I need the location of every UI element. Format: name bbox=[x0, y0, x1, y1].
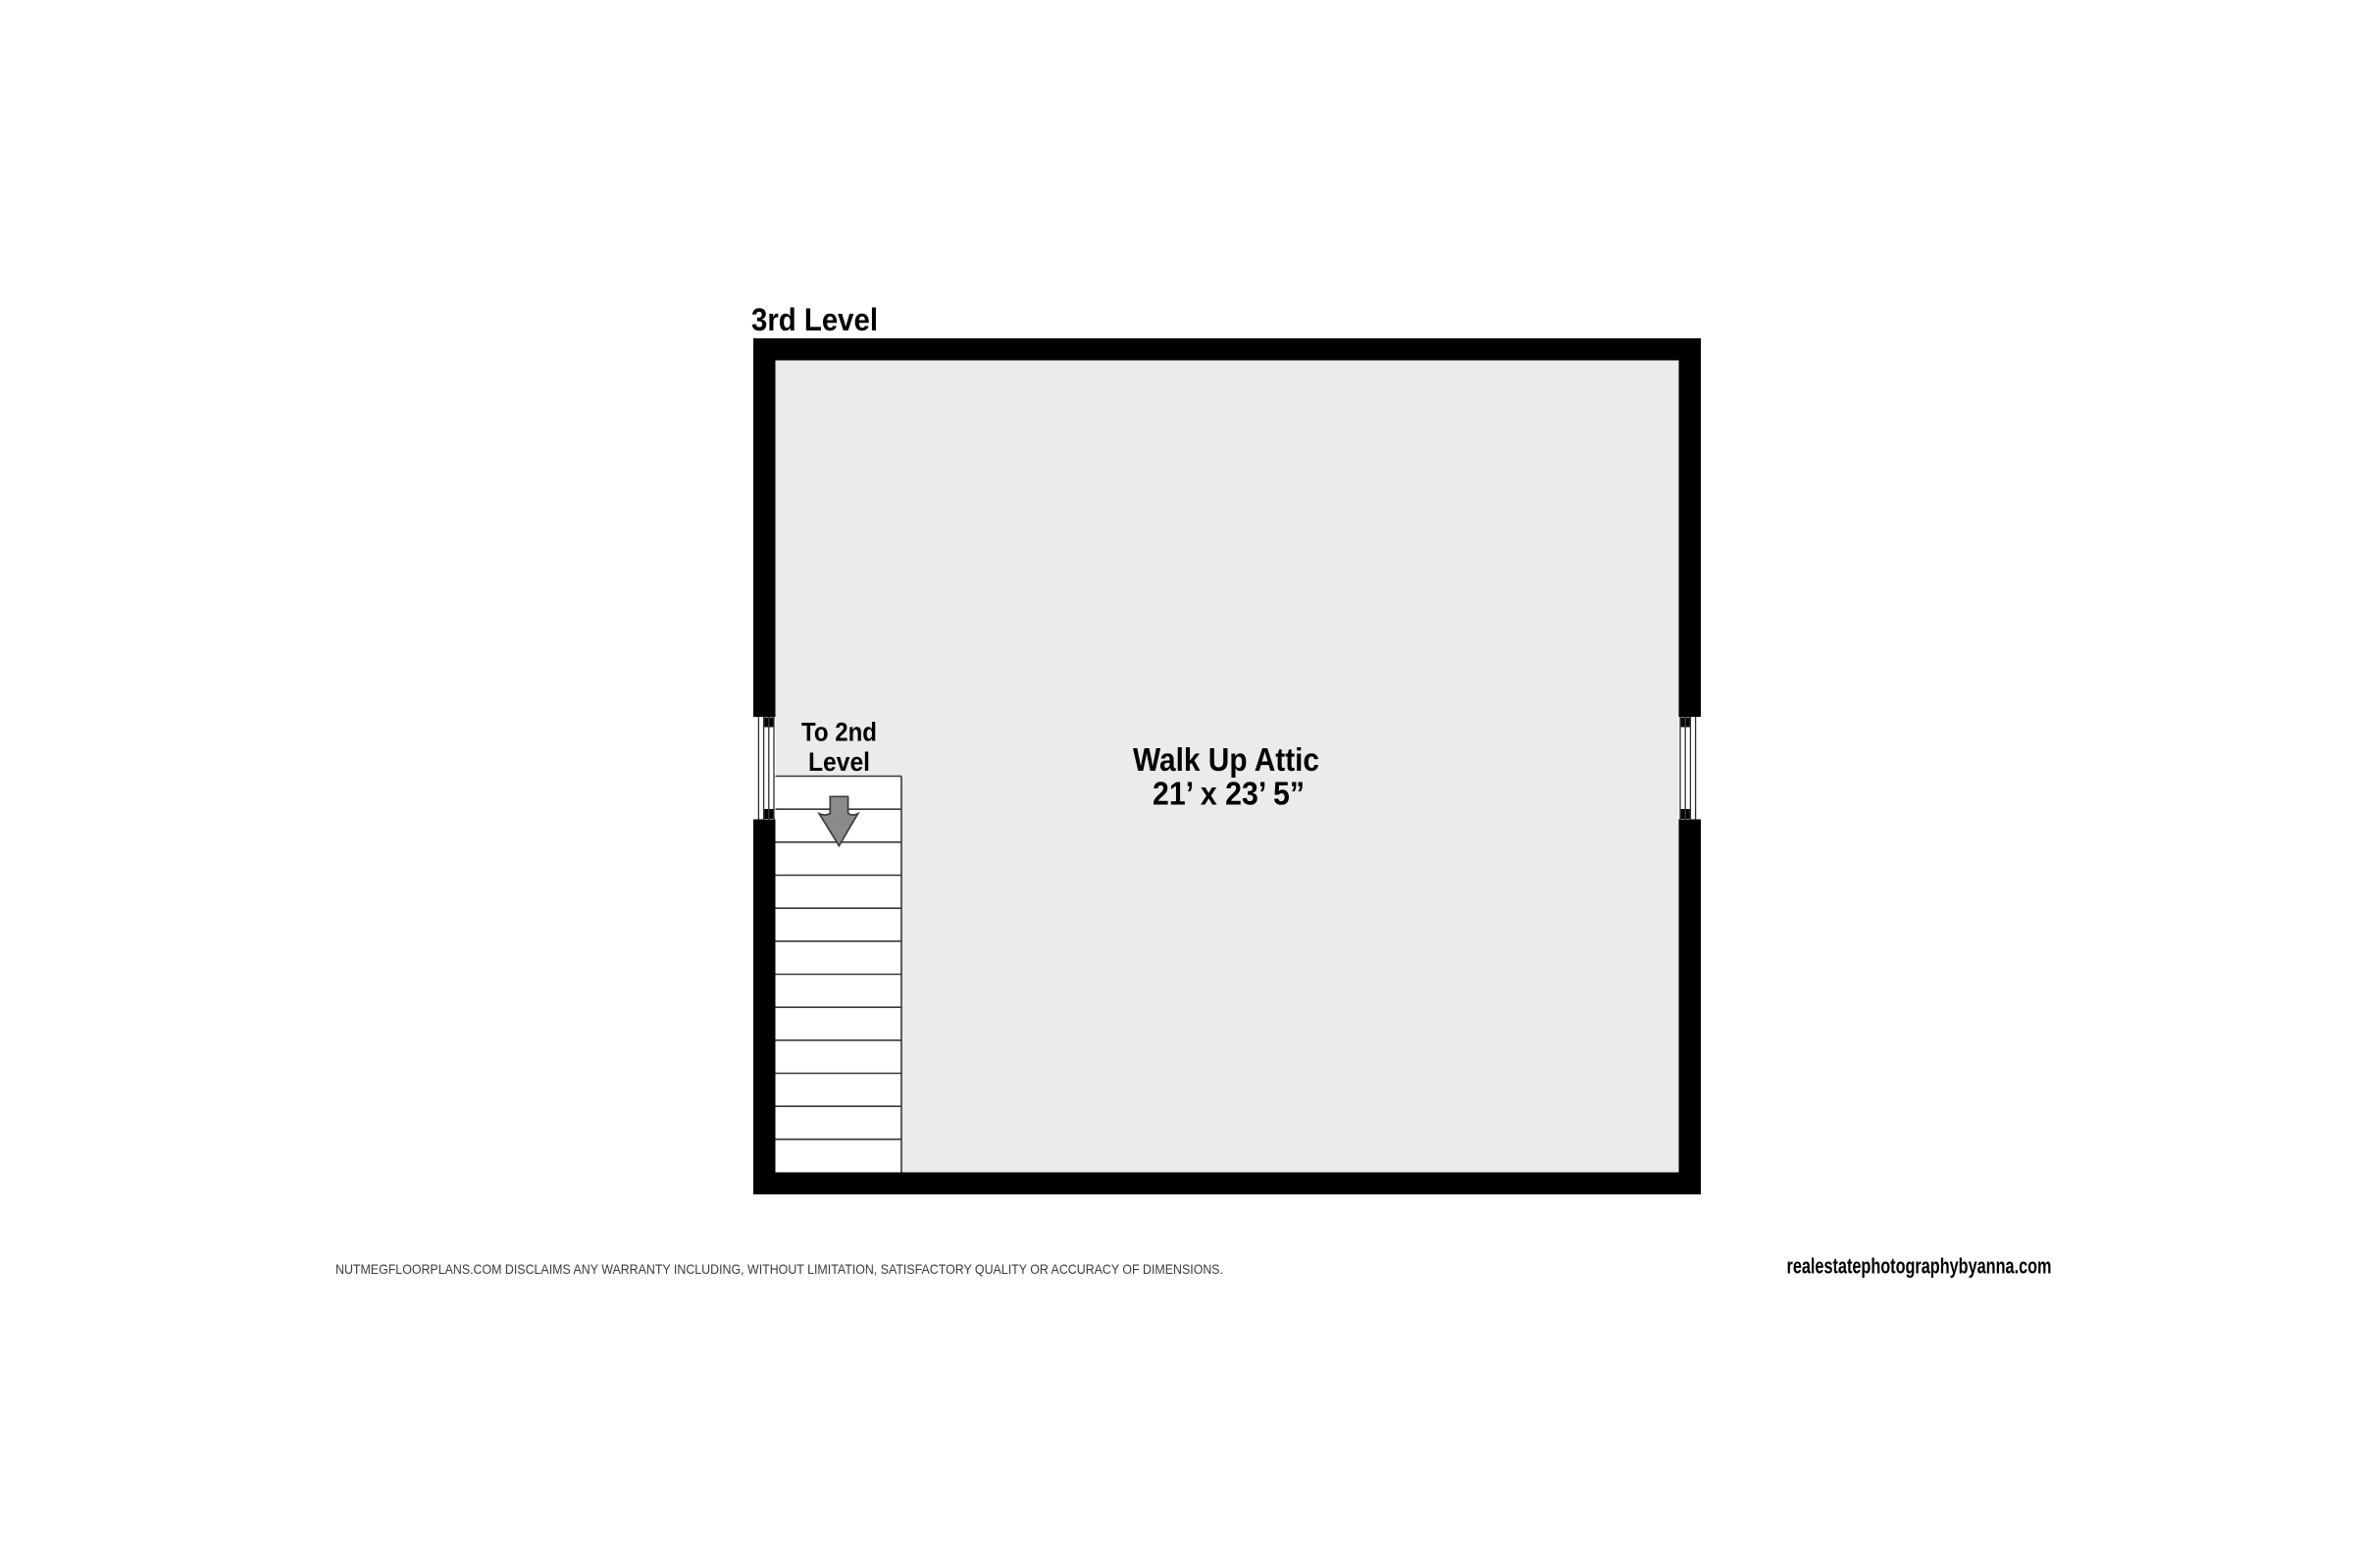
svg-text:Level: Level bbox=[808, 747, 870, 777]
svg-text:Walk Up Attic: Walk Up Attic bbox=[1133, 741, 1319, 778]
svg-text:To 2nd: To 2nd bbox=[801, 718, 877, 747]
svg-text:NUTMEGFLOORPLANS.COM DISCLAIMS: NUTMEGFLOORPLANS.COM DISCLAIMS ANY WARRA… bbox=[335, 1261, 1223, 1277]
svg-text:3rd Level: 3rd Level bbox=[751, 302, 878, 337]
svg-text:realestatephotographybyanna.co: realestatephotographybyanna.com bbox=[1787, 1254, 2052, 1279]
svg-text:21’ x 23’ 5”: 21’ x 23’ 5” bbox=[1153, 776, 1305, 812]
